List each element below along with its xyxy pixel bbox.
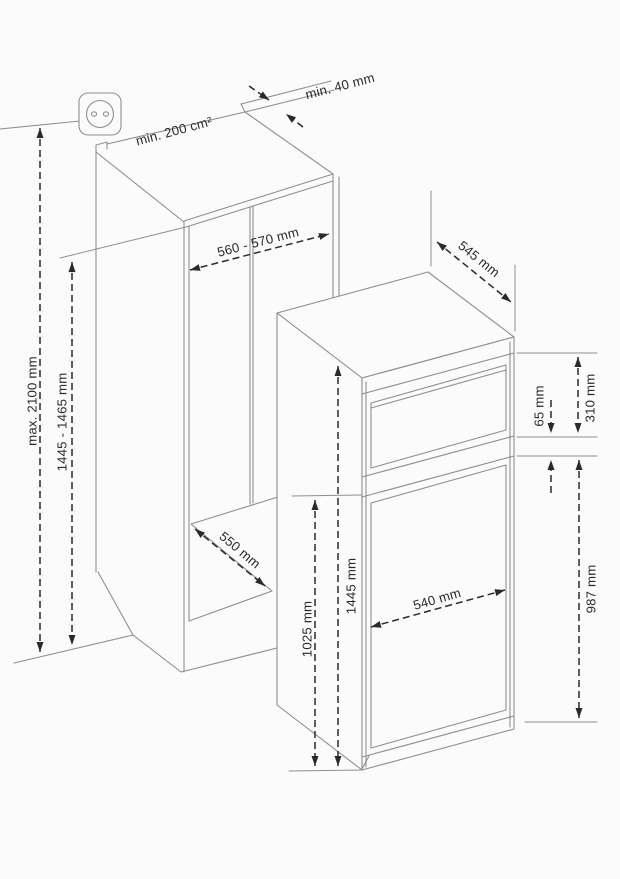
fridge-side-face bbox=[277, 313, 362, 770]
label-niche-height: 1445 - 1465 mm bbox=[55, 373, 70, 472]
diagram-canvas: min. 200 cm² min. 40 mm 560 - 570 mm 550… bbox=[0, 0, 620, 879]
vent-notch bbox=[96, 142, 107, 152]
label-lower-part-height: 987 mm bbox=[584, 565, 599, 614]
refrigerator-drawing bbox=[277, 191, 597, 771]
label-gap-height: 65 mm bbox=[532, 385, 547, 426]
label-total-height: 1445 mm bbox=[344, 558, 359, 614]
label-rear-gap: min. 40 mm bbox=[304, 70, 376, 102]
floor-line bbox=[14, 635, 133, 663]
installation-diagram: min. 200 cm² min. 40 mm 560 - 570 mm 550… bbox=[0, 0, 620, 879]
power-socket-icon bbox=[0, 93, 121, 135]
label-niche-width: 560 - 570 mm bbox=[216, 224, 301, 259]
label-appliance-depth: 545 mm bbox=[455, 238, 502, 280]
dim-rear-gap-arrow-2 bbox=[286, 114, 303, 127]
label-lower-door-top-height: 1025 mm bbox=[300, 601, 315, 657]
label-max-height: max. 2100 mm bbox=[25, 356, 40, 446]
fridge-front-face bbox=[362, 337, 514, 770]
label-vent-area: min. 200 cm² bbox=[134, 113, 214, 148]
label-upper-door-height: 310 mm bbox=[583, 374, 598, 423]
